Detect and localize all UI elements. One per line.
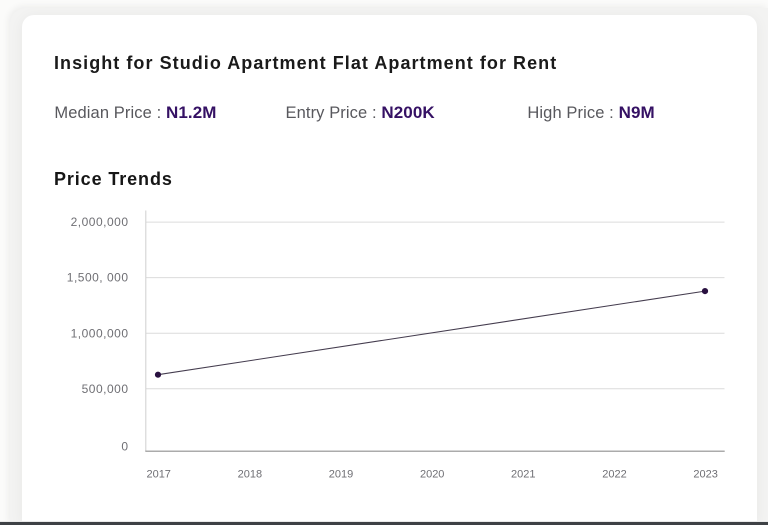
svg-text:1,000,000: 1,000,000 — [71, 326, 129, 340]
svg-text:0: 0 — [121, 440, 128, 454]
svg-text:2020: 2020 — [420, 469, 444, 481]
svg-text:2021: 2021 — [511, 469, 535, 481]
svg-text:2023: 2023 — [693, 469, 717, 481]
svg-text:500,000: 500,000 — [82, 382, 129, 396]
svg-text:2,000,000: 2,000,000 — [71, 215, 129, 229]
svg-text:2022: 2022 — [602, 469, 626, 481]
svg-text:1,500, 000: 1,500, 000 — [67, 271, 129, 285]
svg-text:2017: 2017 — [146, 469, 170, 481]
svg-text:2018: 2018 — [238, 469, 262, 481]
svg-text:2019: 2019 — [329, 469, 353, 481]
